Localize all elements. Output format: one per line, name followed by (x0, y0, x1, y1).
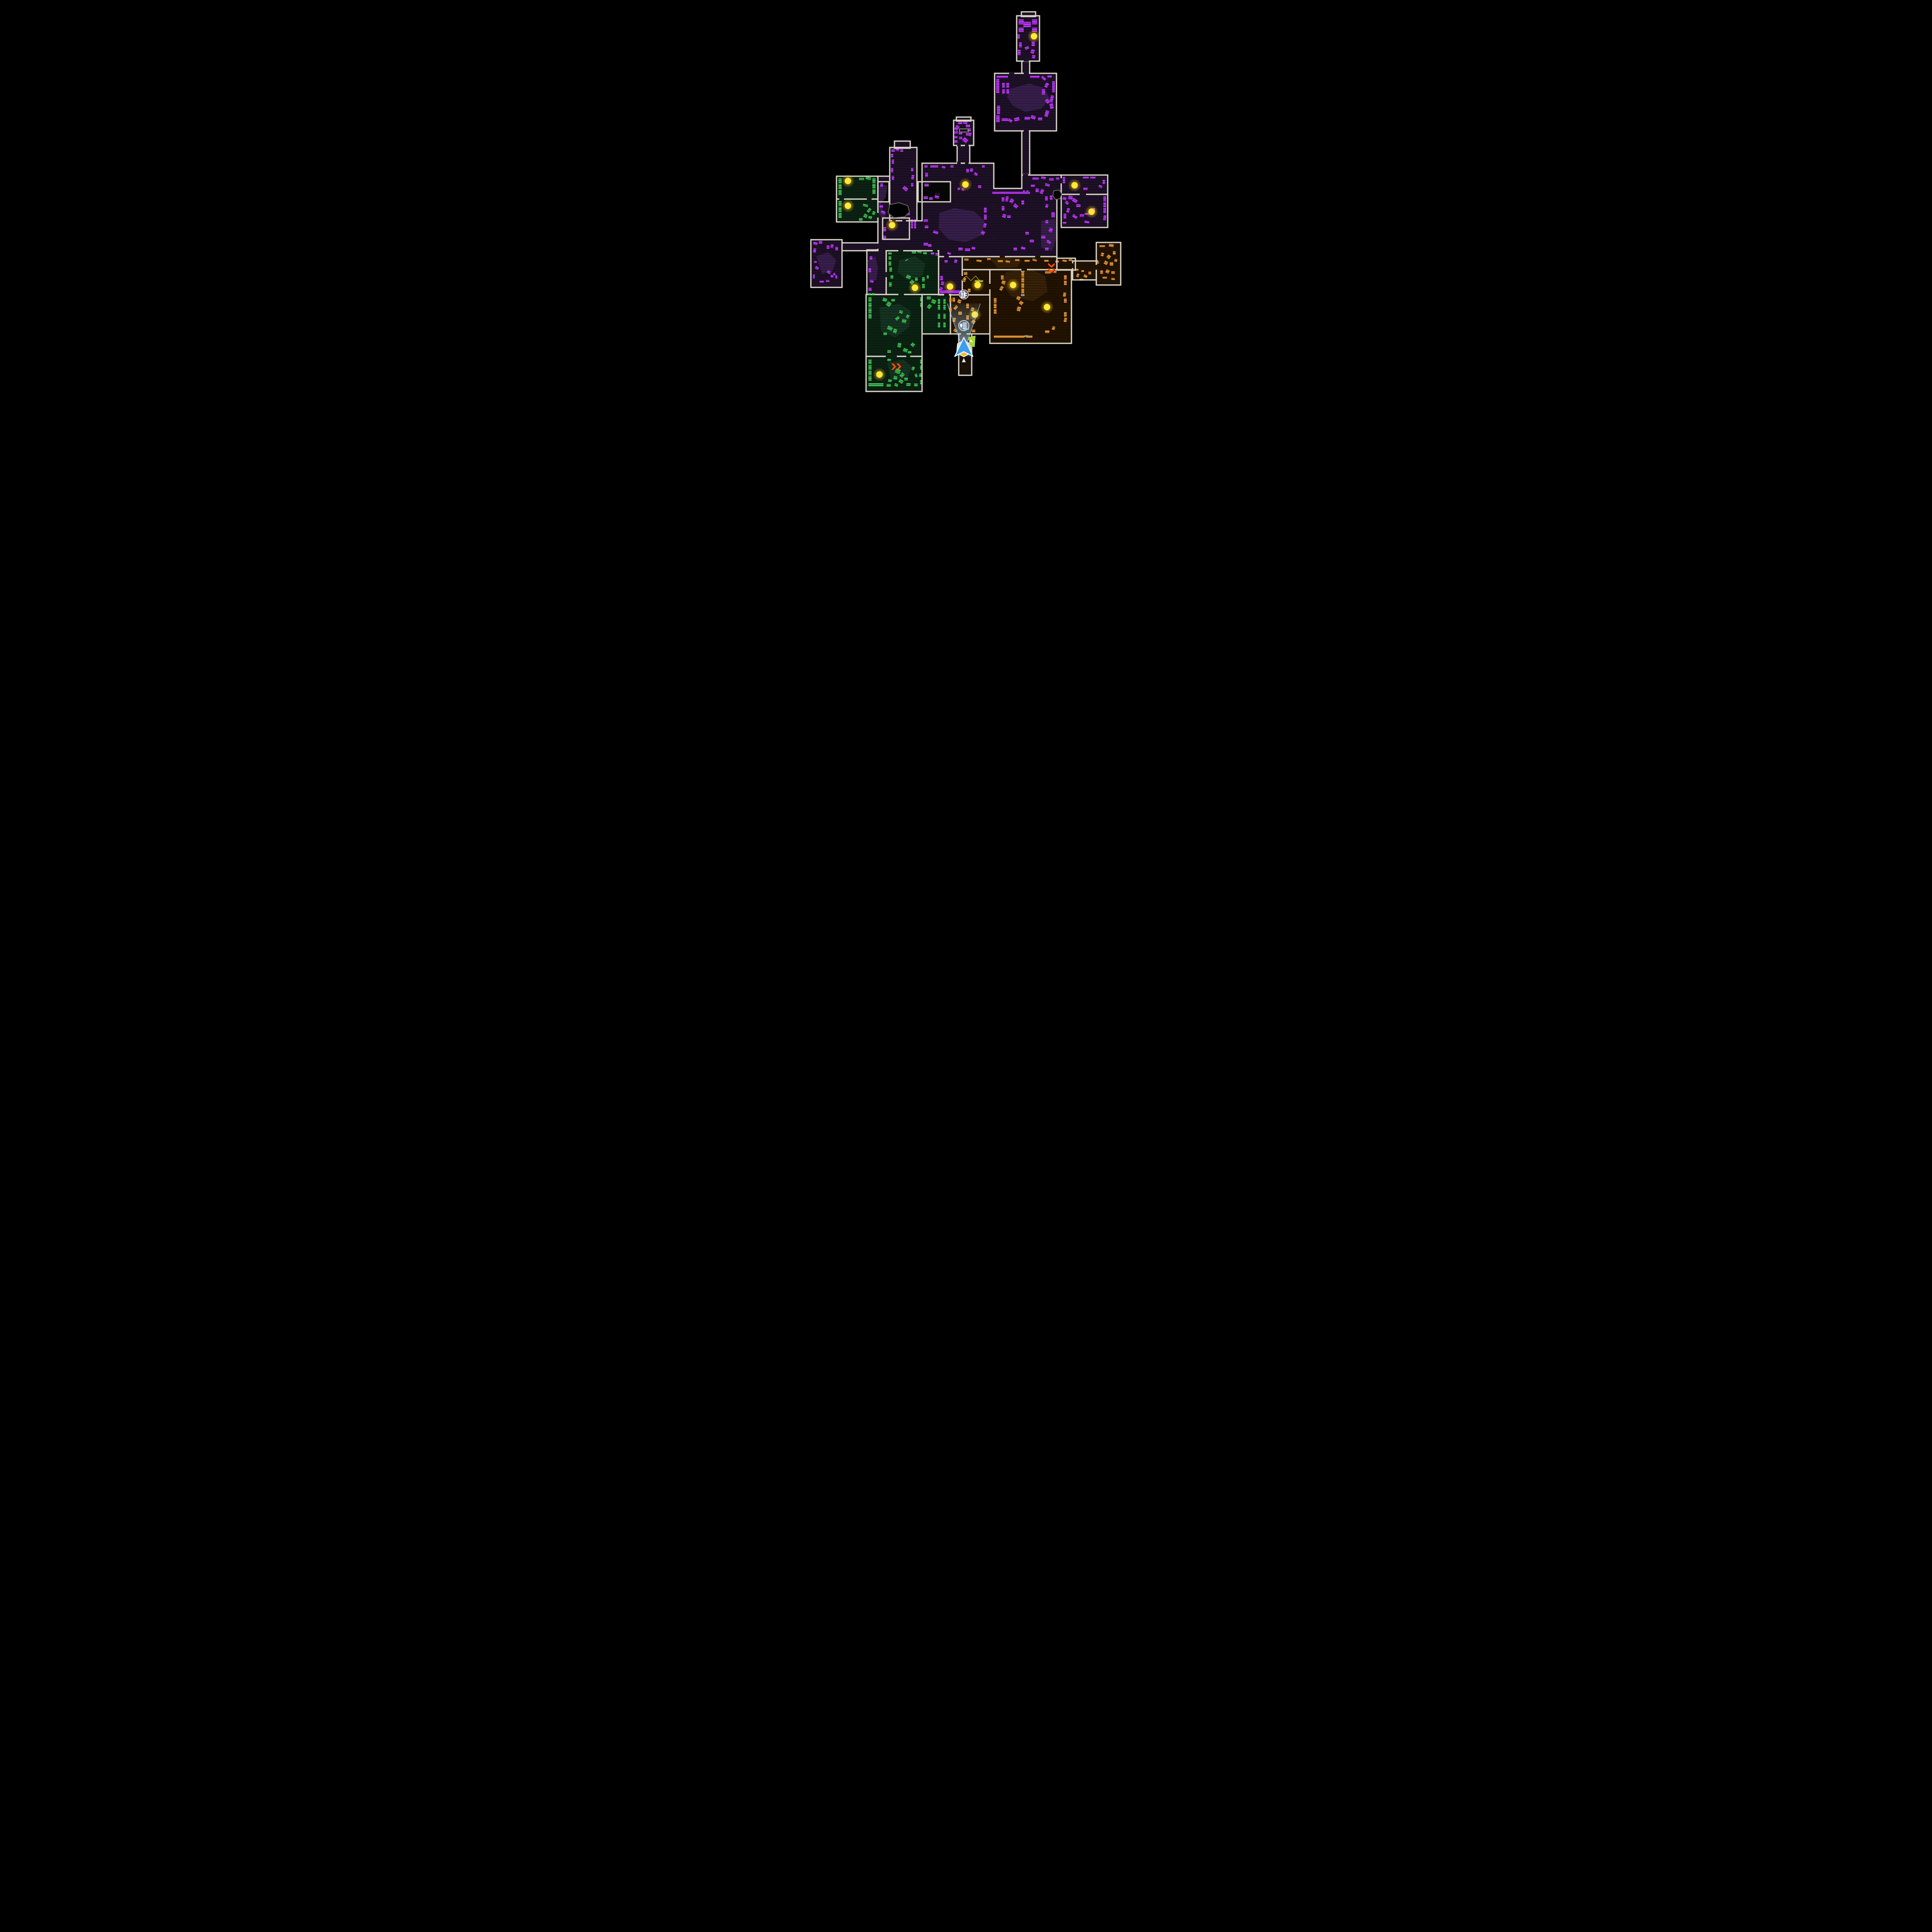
map-screen (769, 0, 1163, 394)
hole-blob (1053, 190, 1062, 199)
yellow-objective-dot (908, 281, 922, 294)
yellow-objective-dot (959, 178, 972, 191)
yellow-objective-dot (885, 218, 899, 232)
door-marker (868, 293, 871, 295)
door-marker (872, 293, 875, 295)
yellow-objective-dot (971, 278, 984, 292)
yellow-objective-dot (943, 280, 957, 293)
yellow-objective-dot (841, 174, 855, 188)
yellow-objective-dot (1040, 300, 1054, 314)
hole-blob (888, 203, 909, 218)
yellow-objective-dot (1006, 278, 1020, 292)
map-viewport[interactable] (769, 0, 1163, 394)
yellow-objective-dot (1085, 205, 1098, 218)
yellow-objective-dot (873, 368, 886, 381)
yellow-objective-dot (1027, 30, 1041, 43)
yellow-objective-dot (841, 199, 855, 212)
elevator-icon[interactable] (959, 290, 968, 299)
yellow-objective-dot (1068, 179, 1081, 192)
door-marker (949, 298, 952, 302)
